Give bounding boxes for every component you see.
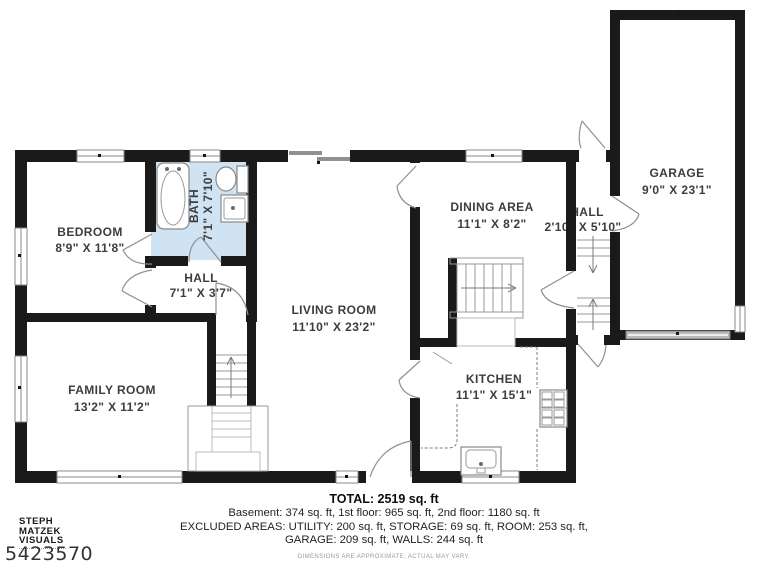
bath-dims: 7'1" X 7'10" <box>201 171 215 241</box>
dining-area-name: DINING AREA <box>450 200 533 214</box>
stairs-hall <box>577 236 610 330</box>
bedroom-door-lower <box>122 270 152 307</box>
floor-areas: Basement: 374 sq. ft, 1st floor: 965 sq.… <box>0 507 768 521</box>
hall-right-dims: 2'10" X 5'10" <box>544 220 621 234</box>
kitchen-dims: 11'1" X 15'1" <box>456 388 532 402</box>
stairs-dining <box>450 258 523 346</box>
toilet-bowl <box>216 167 236 191</box>
family-room-name: FAMILY ROOM <box>68 383 156 397</box>
kitchen-fixtures <box>421 347 567 475</box>
floor-plan-drawing: HALL 2'10" X 5'10" <box>0 0 768 576</box>
kitchen-closet-door <box>433 352 452 364</box>
hall-left-name: HALL <box>184 271 218 285</box>
garage-dims: 9'0" X 23'1" <box>642 183 712 197</box>
garage-name: GARAGE <box>649 166 704 180</box>
bath-name: BATH <box>187 189 201 223</box>
dining-area-dims: 11'1" X 8'2" <box>457 217 526 231</box>
living-kitchen-opening <box>399 361 420 398</box>
disclaimer: DIMENSIONS ARE APPROXIMATE; ACTUAL MAY V… <box>0 554 768 560</box>
sliding-door <box>288 150 350 162</box>
floor-plan-page: HALL 2'10" X 5'10" <box>0 0 768 576</box>
living-room-dims: 11'10" X 23'2" <box>292 320 375 334</box>
dining-hall-door <box>541 271 574 308</box>
living-room-name: LIVING ROOM <box>291 303 376 317</box>
excluded-areas-line2: GARAGE: 209 sq. ft, WALLS: 244 sq. ft <box>0 534 768 548</box>
excluded-areas-line1: EXCLUDED AREAS: UTILITY: 200 sq. ft, STO… <box>0 521 768 535</box>
bathtub <box>157 163 189 229</box>
bedroom-dims: 8'9" X 11'8" <box>55 241 124 255</box>
counter-left <box>421 404 457 448</box>
hall-back-door <box>578 344 606 367</box>
family-room-dims: 13'2" X 11'2" <box>74 400 150 414</box>
kitchen-name: KITCHEN <box>466 372 522 386</box>
entry-door <box>579 121 605 148</box>
total-area: TOTAL: 2519 sq. ft <box>0 492 768 507</box>
toilet-tank <box>237 166 248 193</box>
bedroom-name: BEDROOM <box>57 225 122 239</box>
hall-left-dims: 7'1" X 3'7" <box>170 286 233 300</box>
living-dining-door <box>397 166 416 208</box>
listing-id: 5423570 <box>5 543 93 565</box>
area-summary: TOTAL: 2519 sq. ft Basement: 374 sq. ft,… <box>0 492 768 560</box>
hall-right-label: HALL 2'10" X 5'10" <box>544 205 621 234</box>
